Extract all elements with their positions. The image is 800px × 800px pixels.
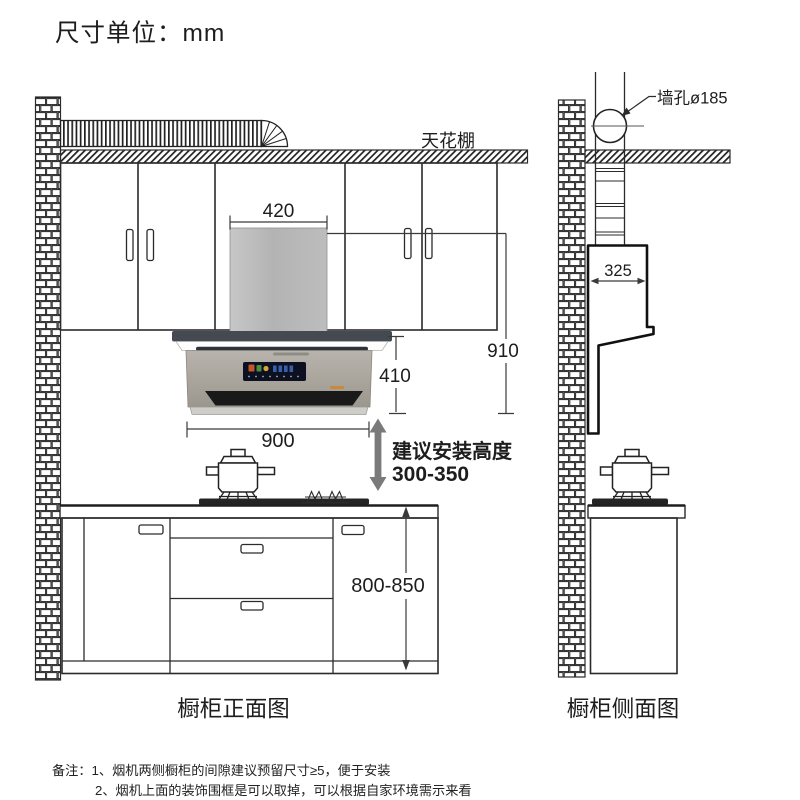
side-countertop [588,506,685,519]
hood-base [190,407,368,415]
page-title: 尺寸单位：mm [55,19,225,47]
front-view-caption: 橱柜正面图 [177,697,290,722]
install-height-range: 300-350 [392,463,469,486]
install-height-arrow-icon [370,419,387,492]
front-ceiling-slab [61,150,528,163]
install-height-title: 建议安装高度 [392,439,513,463]
note-line-2: 2、烟机上面的装饰围框是可以取掉，可以根据自家环境需示来看 [95,782,472,798]
hood-model-mark [330,386,344,389]
hood-canopy [172,331,392,342]
install-height-annotation: 建议安装高度 300-350 [370,419,513,492]
side-cooktop-panel [592,499,668,506]
dim-body-height: 410 [379,366,411,387]
hood-brand-mark [273,353,309,356]
dim-counter-height: 800-850 [351,575,424,597]
ceiling-label: 天花棚 [421,131,475,151]
dim-hood-width: 900 [261,430,294,452]
note-line-1: 备注：1、烟机两侧橱柜的间隙建议预留尺寸≥5，便于安装 [52,762,390,778]
ceiling-roll [61,121,288,147]
wall-hole-callout: 墙孔ø185 [622,89,728,117]
cabinet-handle [139,525,163,534]
notes: 备注：1、烟机两侧橱柜的间隙建议预留尺寸≥5，便于安装 2、烟机上面的装饰围框是… [52,762,472,798]
front-brick-wall [36,97,61,680]
front-view: 天花棚 [36,97,528,722]
wall-hole-label: 墙孔ø185 [657,89,728,108]
dim-chimney-width: 420 [263,201,295,222]
range-hood [172,228,392,415]
drawer-handle [241,602,263,611]
cabinet-handle [342,526,364,535]
cabinet-handle [147,230,154,261]
dim-total-height: 910 [487,341,519,362]
side-brick-wall [559,100,586,677]
side-view-caption: 橱柜侧面图 [567,697,680,722]
side-lower-cabinet [588,506,685,674]
side-view: 墙孔ø185 325 橱柜侧面图 [559,72,731,722]
side-ceiling-slab [585,150,730,163]
hood-display [243,362,306,381]
dim-hood-depth: 325 [604,262,632,280]
hood-chimney [230,228,327,332]
hood-vent-slot [205,391,363,406]
drawer-handle [241,545,263,554]
front-cooktop [199,450,369,506]
installation-diagram: 尺寸单位：mm 天花棚 [0,0,800,800]
cabinet-handle [127,230,134,261]
installation-diagram-page: 尺寸单位：mm 天花棚 [0,0,800,800]
countertop [60,506,438,519]
